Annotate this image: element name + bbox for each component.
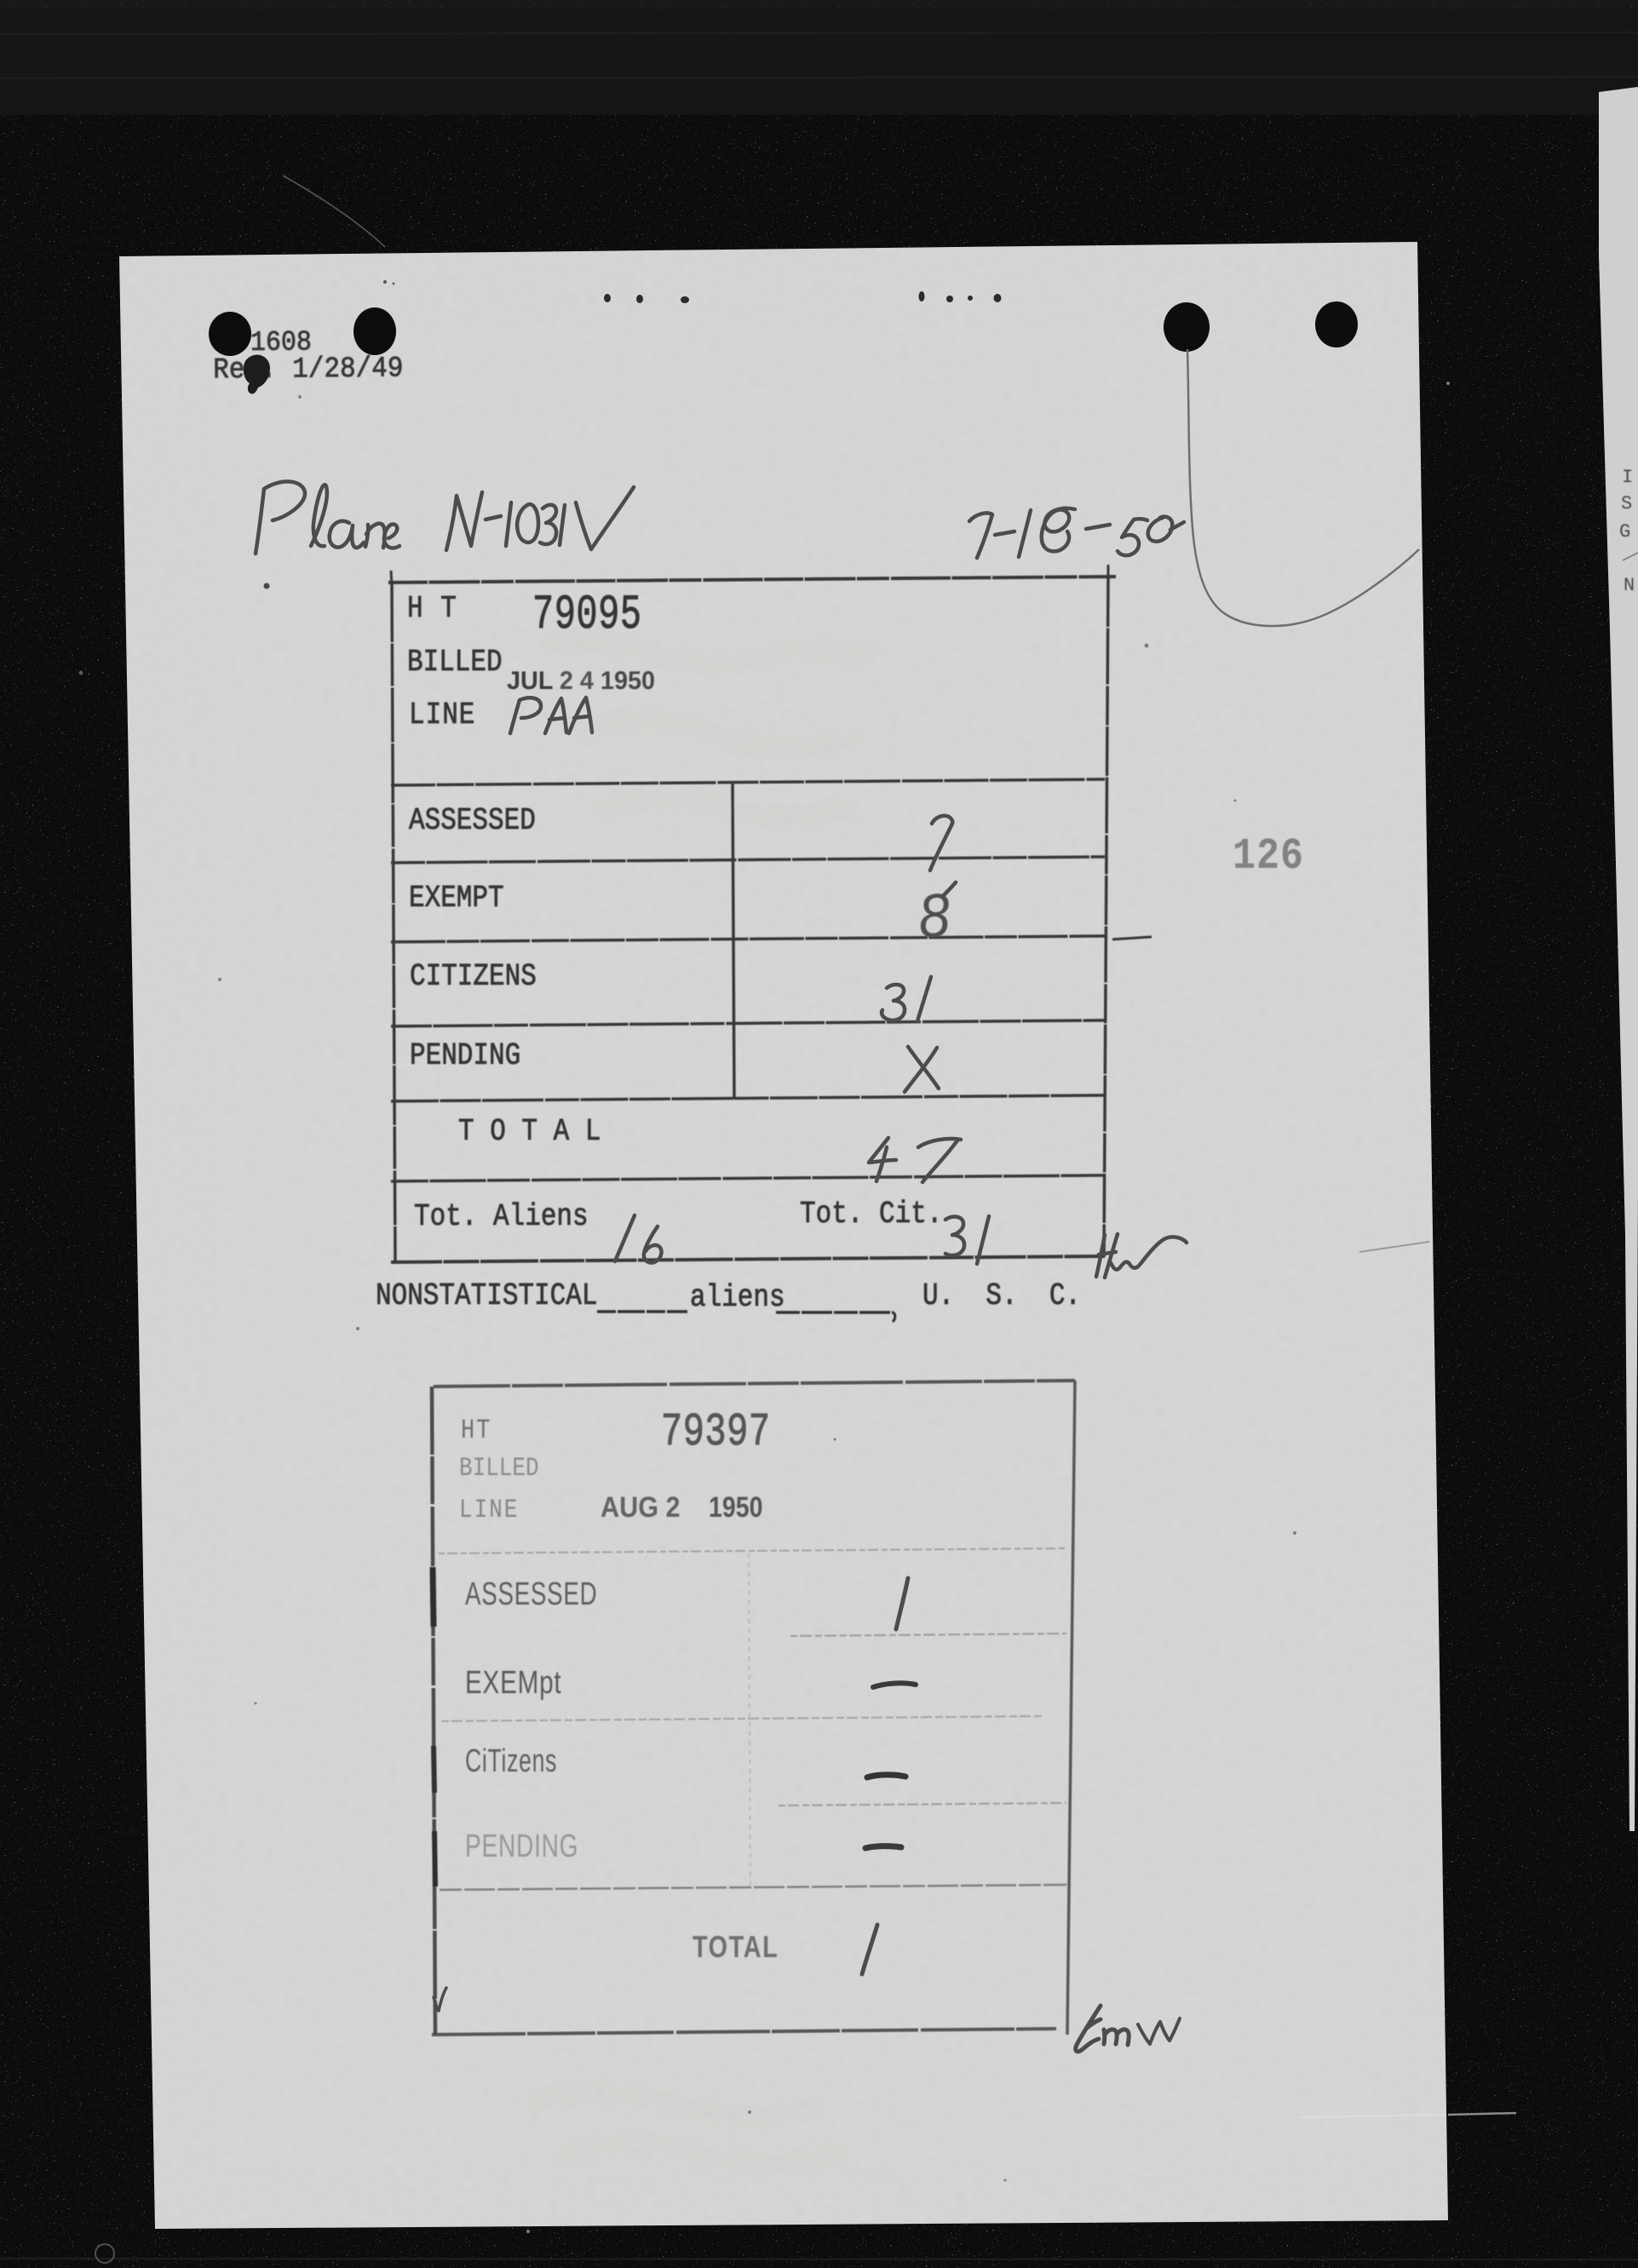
svg-text:N: N	[1624, 575, 1635, 596]
svg-text:Tot. Cit.: Tot. Cit.	[800, 1197, 942, 1232]
svg-text:CiTizens: CiTizens	[465, 1743, 557, 1779]
svg-text:Rev. 1/28/49: Rev. 1/28/49	[213, 353, 404, 387]
svg-text:ASSESSED: ASSESSED	[465, 1576, 597, 1612]
svg-text:JUL 2 4 1950: JUL 2 4 1950	[507, 667, 655, 695]
svg-text:PENDING: PENDING	[410, 1039, 520, 1074]
svg-text:TOTAL: TOTAL	[693, 1929, 779, 1964]
svg-text:LINE: LINE	[409, 698, 475, 733]
svg-text:EXEMpt: EXEMpt	[465, 1665, 561, 1701]
svg-text:NONSTATISTICAL: NONSTATISTICAL	[376, 1279, 597, 1314]
svg-text:CITIZENS: CITIZENS	[410, 960, 537, 995]
svg-text:126: 126	[1233, 831, 1304, 881]
svg-text:U. S. C.: U. S. C.	[922, 1279, 1081, 1314]
svg-text:LINE: LINE	[459, 1495, 519, 1525]
svg-text:79095: 79095	[532, 587, 642, 642]
svg-text:HT: HT	[461, 1416, 491, 1447]
svg-text:AUG 2: AUG 2	[601, 1491, 681, 1524]
svg-text:I: I	[1622, 467, 1633, 488]
svg-text:S: S	[1621, 493, 1632, 514]
svg-text:BILLED: BILLED	[407, 646, 503, 680]
svg-text:BILLED: BILLED	[459, 1453, 539, 1484]
svg-text:T O T A L: T O T A L	[458, 1115, 601, 1150]
svg-text:1950: 1950	[709, 1491, 763, 1524]
svg-text:EXEMPT: EXEMPT	[409, 881, 504, 916]
svg-text:H T: H T	[407, 592, 457, 627]
svg-text:PENDING: PENDING	[465, 1829, 578, 1864]
svg-text:Tot. Aliens: Tot. Aliens	[414, 1200, 589, 1235]
svg-text:79397: 79397	[661, 1406, 771, 1459]
svg-text:aliens: aliens	[690, 1281, 785, 1316]
svg-text:G: G	[1619, 521, 1630, 543]
svg-text:ASSESSED: ASSESSED	[409, 804, 536, 839]
